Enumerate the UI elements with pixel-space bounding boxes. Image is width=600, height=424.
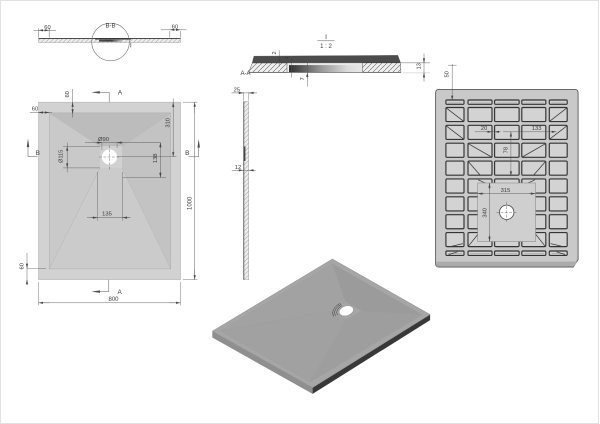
svg-text:800: 800 [108,297,119,303]
svg-text:2: 2 [272,51,278,54]
svg-text:310: 310 [166,118,172,128]
svg-text:Ø115: Ø115 [58,150,64,163]
svg-text:A: A [117,289,122,296]
svg-text:13: 13 [417,63,423,69]
svg-text:20: 20 [481,126,487,132]
svg-text:A-A: A-A [240,71,250,77]
svg-text:133: 133 [532,126,542,132]
svg-text:60: 60 [44,25,50,31]
svg-text:1 : 2: 1 : 2 [320,44,332,50]
svg-text:12: 12 [235,165,241,171]
svg-text:60: 60 [172,24,178,30]
svg-text:B-B: B-B [105,24,115,30]
svg-text:50: 50 [444,71,450,77]
svg-text:1000: 1000 [187,196,193,210]
svg-text:60: 60 [32,107,38,113]
svg-text:7: 7 [300,77,306,80]
svg-text:60: 60 [20,263,26,269]
svg-text:25: 25 [234,88,240,94]
svg-text:60: 60 [65,91,71,97]
svg-text:138: 138 [153,153,159,163]
svg-text:135: 135 [102,212,112,218]
svg-text:78: 78 [504,147,510,153]
svg-text:I: I [325,34,327,41]
svg-text:A: A [118,90,123,97]
svg-text:Ø90: Ø90 [98,137,109,143]
svg-text:4: 4 [284,56,290,59]
svg-text:315: 315 [501,188,511,194]
svg-text:B: B [36,150,40,157]
svg-text:B: B [185,150,189,157]
svg-text:340: 340 [483,208,489,218]
